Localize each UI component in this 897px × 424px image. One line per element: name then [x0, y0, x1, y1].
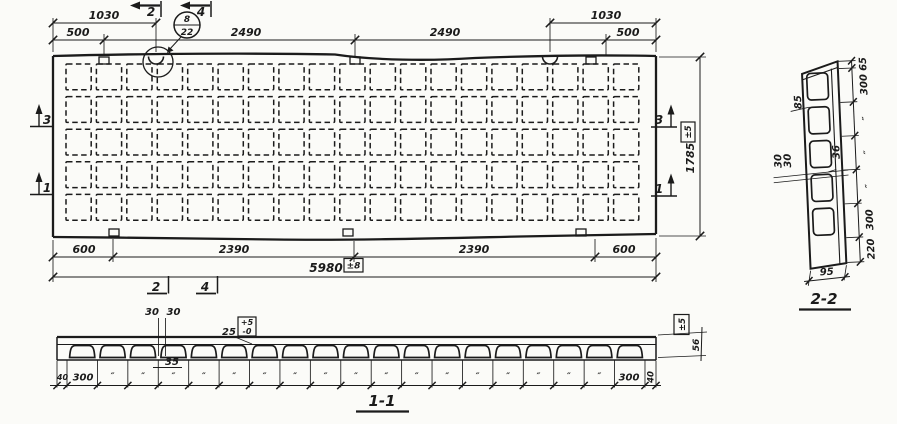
coffer-void: [553, 129, 578, 155]
dim-300-right: 300: [619, 373, 640, 384]
coffer-void: [218, 97, 243, 123]
coffer-void: [66, 162, 91, 188]
rib-void: [283, 346, 308, 358]
s22-dim-label: 65: [858, 57, 870, 71]
coffer-void: [218, 162, 243, 188]
cut-mark-4-top: 4: [196, 5, 205, 19]
coffer-void: [522, 129, 547, 155]
coffer-void: [431, 194, 456, 220]
coffer-void: [188, 64, 213, 90]
coffer-void: [66, 97, 91, 123]
dim-30-b-s22: 30: [783, 153, 795, 167]
coffer-void: [522, 162, 547, 188]
coffer-void: [614, 162, 639, 188]
blueprint-canvas: 8 22 2 4 2 4 3 1 3: [0, 0, 897, 424]
ditto-mark: ″: [415, 372, 419, 382]
coffer-void: [492, 97, 517, 123]
dim-500-left: 500: [67, 26, 90, 39]
cut-mark-2-bottom: 2: [152, 280, 160, 294]
rib-void: [313, 346, 338, 358]
plan-view-outline: [53, 54, 656, 240]
coffer-void: [309, 97, 334, 123]
coffer-void: [553, 194, 578, 220]
coffer-void: [96, 97, 121, 123]
ditto-mark: ″: [232, 372, 236, 382]
engineering-drawing: 8 22 2 4 2 4 3 1 3: [0, 0, 897, 424]
tol-flange-plus: +5: [241, 318, 254, 327]
coffer-void: [431, 129, 456, 155]
rib-void: [343, 346, 368, 358]
rib-void: [222, 346, 247, 358]
coffer-void: [522, 64, 547, 90]
ditto-mark: ″: [141, 372, 145, 382]
coffer-void: [553, 64, 578, 90]
coffer-void: [431, 162, 456, 188]
s22-dim-label: 300: [865, 209, 877, 230]
coffer-void: [188, 129, 213, 155]
rib-void: [496, 346, 521, 358]
ditto-mark: ″: [172, 372, 176, 382]
coffer-void: [157, 97, 182, 123]
coffer-void: [401, 97, 426, 123]
coffer-void: [462, 64, 487, 90]
dim-40-left: 40: [56, 373, 69, 382]
coffer-void: [157, 162, 182, 188]
ditto-mark: ″: [111, 372, 115, 382]
dim-1030-left: 1030: [89, 9, 120, 22]
coffer-void: [492, 162, 517, 188]
rib-void: [70, 346, 95, 358]
coffer-void: [401, 129, 426, 155]
cut-mark-4-bottom: 4: [200, 280, 209, 294]
dim-2390-a: 2390: [219, 243, 250, 256]
coffer-void: [522, 194, 547, 220]
coffer-void: [127, 129, 152, 155]
coffer-void: [522, 97, 547, 123]
coffer-void: [66, 194, 91, 220]
ditto-mark: ″: [506, 372, 510, 382]
coffer-void: [462, 194, 487, 220]
s22-dim-label: 300: [859, 74, 871, 95]
cut-mark-1-right: 1: [655, 182, 663, 196]
dim-85: 85: [793, 95, 805, 109]
tol-total: ±8: [347, 262, 361, 272]
coffer-void: [96, 162, 121, 188]
ditto-mark: ″: [293, 372, 297, 382]
channel-void: [808, 107, 830, 134]
section-1-1-title: 1-1: [368, 392, 395, 410]
coffer-void: [340, 194, 365, 220]
coffer-void: [127, 97, 152, 123]
coffer-void: [279, 129, 304, 155]
rib-void: [100, 346, 125, 358]
coffer-void: [462, 97, 487, 123]
coffer-void: [492, 64, 517, 90]
coffer-void: [401, 162, 426, 188]
ditto-mark: ″: [445, 372, 449, 382]
coffer-void: [249, 64, 274, 90]
tol-height: ±5: [684, 125, 694, 138]
coffer-void: [431, 97, 456, 123]
rib-void: [191, 346, 216, 358]
coffer-void: [370, 64, 395, 90]
coffer-void: [127, 162, 152, 188]
lifting-loop-left: [149, 57, 164, 65]
coffer-void: [279, 162, 304, 188]
coffer-void: [614, 97, 639, 123]
coffer-void: [553, 162, 578, 188]
coffer-void: [401, 194, 426, 220]
ditto-mark: ″: [202, 372, 206, 382]
coffer-void: [614, 194, 639, 220]
coffer-void: [614, 64, 639, 90]
coffer-void: [614, 129, 639, 155]
coffer-void: [157, 129, 182, 155]
channel-void: [812, 208, 834, 235]
dim-thickness-56: 56: [692, 339, 702, 352]
rib-void: [526, 346, 551, 358]
coffer-void: [583, 97, 608, 123]
embeds-and-loops: [99, 57, 596, 237]
rib-void: [435, 346, 460, 358]
coffer-void: [309, 162, 334, 188]
tol-flange-minus: -0: [243, 327, 252, 336]
coffer-void: [157, 194, 182, 220]
s22-dim-label: ″: [861, 116, 871, 120]
coffer-void: [188, 97, 213, 123]
coffer-void: [127, 64, 152, 90]
coffer-void: [462, 162, 487, 188]
callout-sheet: 22: [181, 28, 194, 38]
coffer-void: [553, 97, 578, 123]
coffer-void: [249, 194, 274, 220]
section-1-1: ″″″″″″″″″″″″″″″″″ 40 300 300 40 30 30 35…: [50, 307, 707, 389]
coffer-void: [462, 129, 487, 155]
ditto-mark: ″: [354, 372, 358, 382]
coffer-void: [249, 129, 274, 155]
coffer-void: [249, 162, 274, 188]
rib-void: [587, 346, 612, 358]
dim-2490-a: 2490: [231, 26, 262, 39]
dim-30-a-s11: 30: [145, 307, 159, 318]
coffer-void: [127, 194, 152, 220]
coffer-void: [279, 194, 304, 220]
ditto-mark: ″: [537, 372, 541, 382]
dim-500-right: 500: [617, 26, 640, 39]
dim-total-5980: 5980: [309, 261, 342, 275]
dim-40-right: 40: [647, 371, 657, 384]
ditto-mark: ″: [324, 372, 328, 382]
dim-300-left: 300: [73, 373, 94, 384]
cut-mark-3-left: 3: [43, 113, 51, 127]
coffer-void: [66, 64, 91, 90]
coffer-void: [583, 194, 608, 220]
rib-void: [252, 346, 277, 358]
coffer-void: [492, 194, 517, 220]
lifting-loop-right: [543, 57, 558, 65]
coffer-void: [492, 129, 517, 155]
coffer-void: [96, 129, 121, 155]
dim-35: 35: [165, 357, 179, 368]
dim-25: 25: [222, 327, 236, 338]
coffer-void: [370, 162, 395, 188]
coffer-void: [583, 162, 608, 188]
coffer-void: [370, 194, 395, 220]
coffer-void: [309, 194, 334, 220]
coffer-void: [218, 129, 243, 155]
coffer-void: [309, 129, 334, 155]
ditto-mark: ″: [567, 372, 571, 382]
cut-mark-2-top: 2: [147, 5, 155, 19]
cut-mark-1-left: 1: [43, 181, 51, 195]
rib-void: [404, 346, 429, 358]
channel-void: [809, 140, 831, 167]
rib-void: [465, 346, 490, 358]
cut-mark-3-right: 3: [655, 113, 663, 127]
coffer-void: [340, 129, 365, 155]
coffer-void: [188, 162, 213, 188]
ditto-mark: ″: [263, 372, 267, 382]
dim-1030-right: 1030: [591, 9, 622, 22]
dim-30-b-s11: 30: [167, 307, 181, 318]
s22-dim-label: ″: [863, 150, 873, 154]
dim-height-1785: 1785: [684, 142, 697, 173]
dim-2390-b: 2390: [459, 243, 490, 256]
coffer-void: [279, 64, 304, 90]
coffer-void: [66, 129, 91, 155]
rib-void: [556, 346, 581, 358]
coffer-void: [340, 97, 365, 123]
dim-2490-b: 2490: [430, 26, 461, 39]
rib-void: [130, 346, 155, 358]
coffer-void: [370, 97, 395, 123]
ditto-mark: ″: [476, 372, 480, 382]
ditto-mark: ″: [384, 372, 388, 382]
coffer-void: [340, 162, 365, 188]
dim-600-bl: 600: [73, 243, 96, 256]
coffer-void: [249, 97, 274, 123]
coffer-void: [96, 64, 121, 90]
coffer-void: [96, 194, 121, 220]
coffer-void: [583, 64, 608, 90]
rib-void: [161, 346, 186, 358]
coffer-void: [370, 129, 395, 155]
plan-dimension-lines: [53, 18, 706, 282]
coffer-grid: [66, 64, 639, 220]
callout-number: 8: [184, 15, 190, 25]
section-2-2-title: 2-2: [810, 290, 837, 308]
dim-36: 36: [831, 145, 843, 159]
coffer-void: [309, 64, 334, 90]
coffer-void: [279, 97, 304, 123]
tol-thickness: ±5: [678, 318, 688, 331]
coffer-void: [431, 64, 456, 90]
rib-void: [617, 346, 642, 358]
coffer-void: [583, 129, 608, 155]
dim-600-br: 600: [613, 243, 636, 256]
s22-dim-label: ″: [864, 184, 874, 188]
s22-dim-label: 220: [866, 238, 878, 259]
section-2-2: 65300″″″300220 95 85 30 30 36: [768, 56, 878, 287]
coffer-void: [218, 194, 243, 220]
coffer-void: [340, 64, 365, 90]
ditto-mark: ″: [597, 372, 601, 382]
coffer-void: [188, 194, 213, 220]
dim-95: 95: [820, 267, 834, 279]
coffer-void: [401, 64, 426, 90]
rib-void: [374, 346, 399, 358]
coffer-void: [218, 64, 243, 90]
